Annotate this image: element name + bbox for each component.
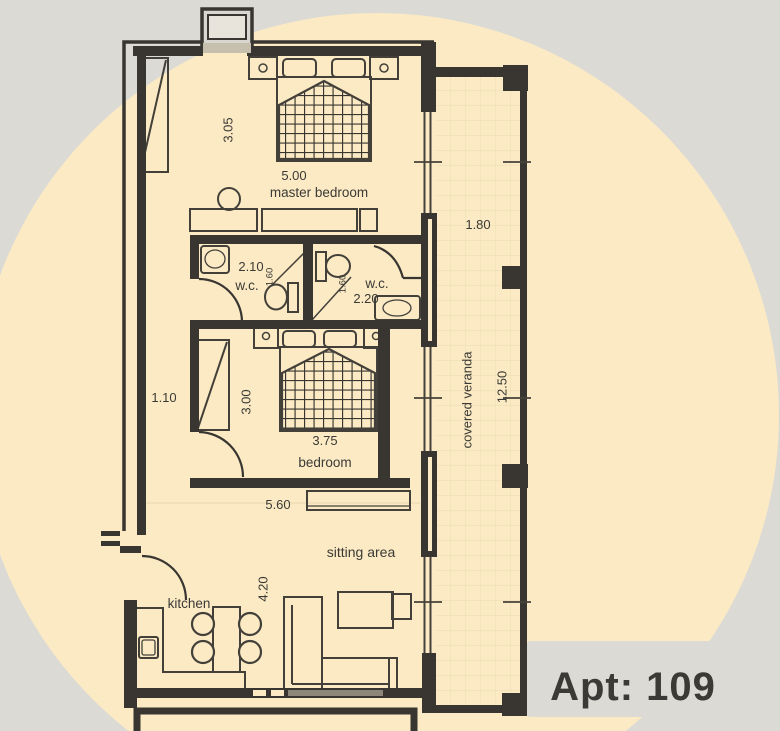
dim-sitting-width: 5.60 (265, 497, 290, 512)
apartment-number-label: Apt: 109 (550, 665, 716, 709)
floor-plan-drawing: 3.05 5.00 master bedroom 1.80 2.10 w.c. … (0, 0, 780, 731)
room-wc-second: w.c. (364, 276, 388, 291)
dim-master-depth: 3.05 (221, 117, 236, 142)
dim-bedroom-width: 3.75 (312, 433, 337, 448)
floor-plan-page: 3.05 5.00 master bedroom 1.80 2.10 w.c. … (0, 0, 780, 731)
chair-icon (192, 641, 214, 663)
dim-sitting-depth: 4.20 (256, 576, 271, 601)
bottom-glass-door (253, 690, 383, 696)
room-bedroom: bedroom (298, 455, 351, 470)
room-covered-veranda: covered veranda (460, 351, 475, 449)
room-sitting-area: sitting area (327, 544, 396, 560)
room-master-bedroom: master bedroom (270, 185, 368, 200)
dim-master-width: 5.00 (281, 168, 306, 183)
chair-icon (239, 613, 261, 635)
room-kitchen: kitchen (168, 596, 211, 611)
dim-wc-second-width: 2.20 (353, 291, 378, 306)
chair-icon (239, 641, 261, 663)
dim-veranda-length: 12.50 (495, 371, 510, 404)
dim-bedroom-depth: 3.00 (239, 389, 254, 414)
dim-veranda-width: 1.80 (465, 217, 490, 232)
dim-wc-second-diagonal: 1.60 (338, 275, 349, 294)
dim-hall-width: 1.10 (151, 390, 176, 405)
dim-wc-master-width: 2.10 (238, 259, 263, 274)
dim-wc-master-diagonal: 1.60 (265, 268, 276, 287)
chair-icon (192, 613, 214, 635)
room-wc-master: w.c. (234, 278, 258, 293)
top-balcony (202, 9, 252, 53)
